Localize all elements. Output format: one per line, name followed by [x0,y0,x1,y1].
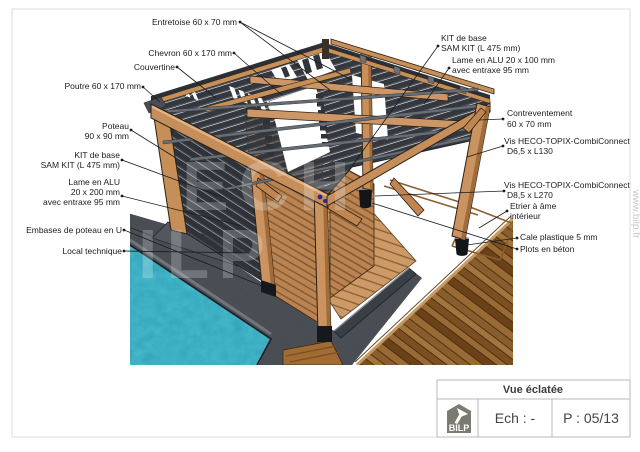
svg-text:KIT de base: KIT de base [74,150,120,160]
svg-text:20 x 200 mm: 20 x 200 mm [71,187,120,197]
svg-text:Etrier à âme: Etrier à âme [510,201,557,211]
svg-text:Lame en ALU: Lame en ALU [68,177,120,187]
svg-text:Vis HECO-TOPIX-CombiConnect: Vis HECO-TOPIX-CombiConnect [504,136,630,146]
svg-text:60 x 70 mm: 60 x 70 mm [507,119,551,129]
svg-text:Embases de poteau en U: Embases de poteau en U [26,225,122,235]
svg-text:BILP: BILP [449,423,470,433]
svg-text:ECH: ECH [182,147,360,225]
svg-text:P : 05/13: P : 05/13 [563,410,619,426]
svg-text:Poutre 60 x 170 mm: Poutre 60 x 170 mm [64,81,141,91]
svg-text:Chevron 60 x 170 mm: Chevron 60 x 170 mm [148,48,232,58]
svg-text:ILP: ILP [138,215,274,293]
svg-text:Vue éclatée: Vue éclatée [503,384,563,396]
svg-text:D6,5 x L130: D6,5 x L130 [507,146,553,156]
svg-text:avec entraxe 95 mm: avec entraxe 95 mm [43,197,120,207]
svg-text:www.bilp.fr: www.bilp.fr [630,189,640,239]
svg-text:90 x 90 mm: 90 x 90 mm [85,131,129,141]
svg-text:SAM KIT (L 475 mm): SAM KIT (L 475 mm) [41,160,121,170]
svg-text:Ech : -: Ech : - [495,410,536,426]
svg-text:SAM KIT (L 475 mm): SAM KIT (L 475 mm) [441,43,521,53]
svg-text:D8,5 x L270: D8,5 x L270 [507,190,553,200]
svg-text:KIT de base: KIT de base [441,33,487,43]
svg-text:Poteau: Poteau [102,121,129,131]
svg-text:Cale plastique 5 mm: Cale plastique 5 mm [520,232,597,242]
svg-text:avec entraxe 95 mm: avec entraxe 95 mm [452,65,529,75]
svg-text:Lame en ALU 20 x 100 mm: Lame en ALU 20 x 100 mm [452,55,555,65]
svg-text:Local technique: Local technique [62,246,122,256]
svg-text:Vis HECO-TOPIX-CombiConnect: Vis HECO-TOPIX-CombiConnect [504,180,630,190]
svg-text:Contreventement: Contreventement [507,108,573,118]
svg-text:Couvertine: Couvertine [134,62,175,72]
svg-text:Entretoise 60 x 70 mm: Entretoise 60 x 70 mm [152,17,237,27]
svg-text:intérieur: intérieur [510,211,541,221]
svg-text:Plots en béton: Plots en béton [520,244,575,254]
